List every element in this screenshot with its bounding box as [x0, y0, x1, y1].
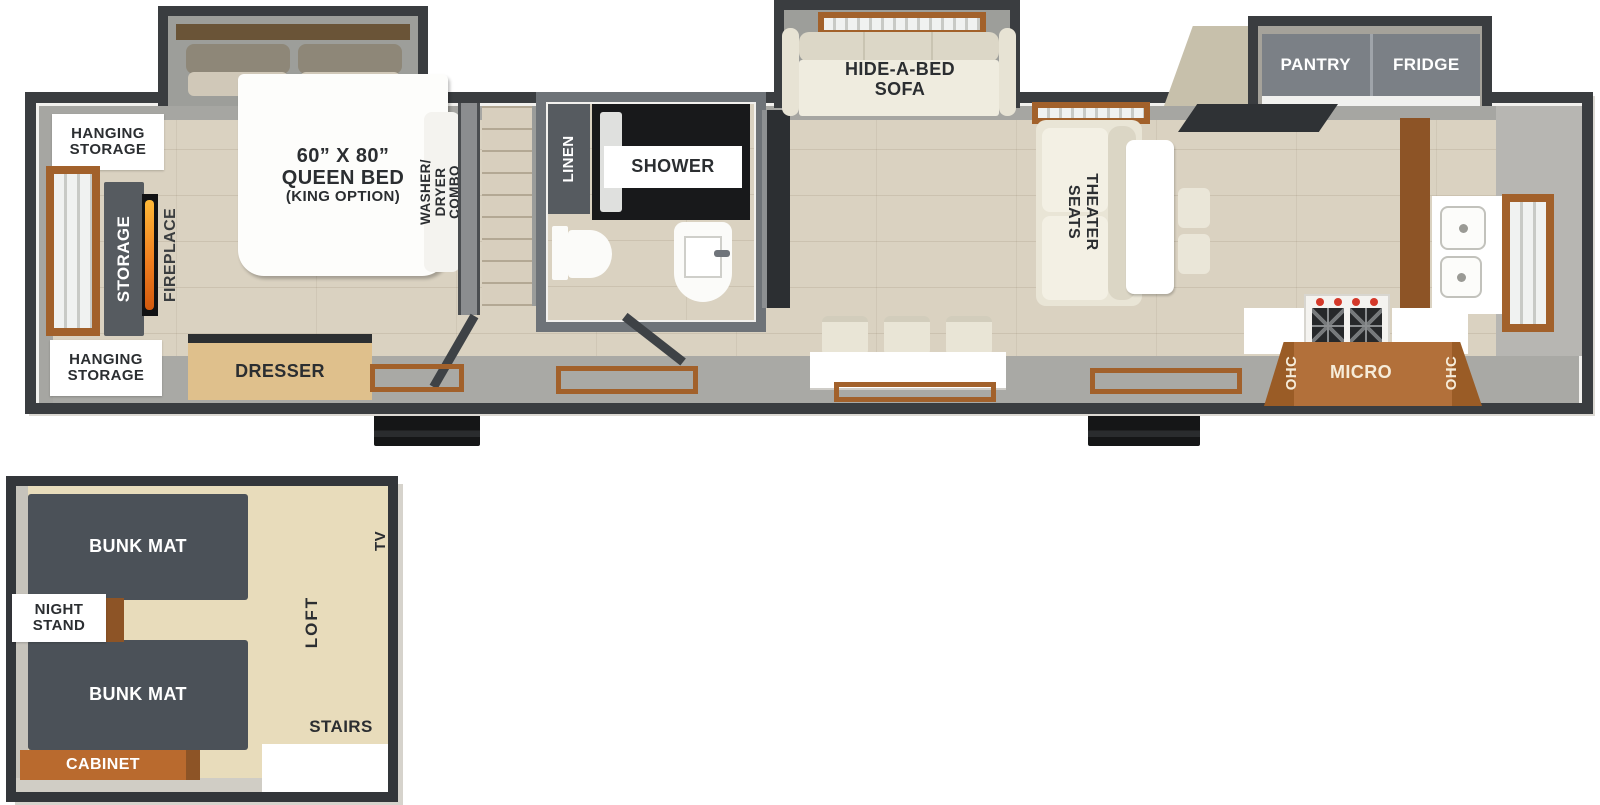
hanging-storage-top-label: HANGING STORAGE: [52, 114, 164, 170]
entry-step-left: [374, 412, 480, 446]
fireplace-label: FIREPLACE: [156, 185, 186, 325]
label-line: WASHER/: [419, 159, 434, 225]
theater-seats-label: THEATER SEATS: [1060, 137, 1104, 287]
label-line: NIGHT: [35, 602, 84, 619]
tv-entertainment-wall: [762, 110, 790, 308]
pantry-fridge-cabinet: PANTRY FRIDGE: [1262, 34, 1480, 96]
storage-label: STORAGE: [104, 184, 144, 334]
stairs-to-loft: [482, 106, 536, 306]
stove-knob-icon: [1370, 298, 1378, 306]
label-line: OHC: [1284, 356, 1301, 391]
kitchen-tall-cabinet: [1400, 118, 1430, 316]
label-line: MICRO: [1330, 363, 1392, 383]
label-line: OHC: [1444, 356, 1461, 391]
label-line: STAND: [33, 618, 86, 635]
label-line: SEATS: [1064, 185, 1082, 239]
shower-label: SHOWER: [604, 146, 742, 188]
loft-tv-label: TV: [369, 511, 393, 571]
sofa-label: HIDE-A-BED SOFA: [812, 52, 988, 108]
bed-size-label: 60” X 80”: [297, 145, 390, 167]
bathroom-sink-basin: [684, 236, 722, 278]
label-line: BUNK MAT: [89, 685, 187, 705]
label-line: FIREPLACE: [162, 208, 180, 302]
bed-type-label: QUEEN BED: [282, 167, 405, 189]
label-line: DRYER: [434, 168, 449, 217]
label-line: STORAGE: [70, 142, 147, 159]
kitchen-sink: [1440, 206, 1486, 250]
sink-drain-icon: [1457, 273, 1466, 282]
dinette-chair: [1178, 188, 1210, 228]
stairs-label: STAIRS: [286, 714, 396, 740]
fireplace-flame-icon: [145, 200, 154, 310]
label-line: BUNK MAT: [89, 537, 187, 557]
label-line: LOFT: [303, 596, 322, 648]
sofa-arm: [999, 28, 1016, 116]
pillow: [298, 44, 402, 74]
label-line: SHOWER: [631, 157, 714, 177]
hanging-storage-bottom-label: HANGING STORAGE: [50, 340, 162, 396]
label-line: HIDE-A-BED: [845, 60, 955, 80]
kitchen-entry-mat: [1090, 368, 1242, 394]
label-line: STORAGE: [115, 216, 134, 303]
label-line: PANTRY: [1281, 56, 1351, 75]
floorplan-canvas: HANGING STORAGE STORAGE FIREPLACE HANGIN…: [0, 0, 1600, 805]
night-stand-label: NIGHT STAND: [12, 594, 106, 642]
label-line: STORAGE: [68, 368, 145, 385]
kitchen-window: [1502, 194, 1554, 332]
sofa-arm: [782, 28, 799, 116]
label-line: FRIDGE: [1393, 56, 1460, 75]
label-line: TV: [373, 531, 390, 551]
stove-knob-icon: [1316, 298, 1324, 306]
label-line: SOFA: [875, 80, 926, 100]
toilet-bowl: [568, 230, 612, 278]
dinette-chair: [1178, 234, 1210, 274]
stove-knob-icon: [1334, 298, 1342, 306]
loft-cabinet: CABINET: [20, 750, 200, 780]
label-line: THEATER: [1082, 173, 1100, 250]
entry-step-right: [1088, 412, 1200, 446]
toilet-tank: [552, 226, 568, 280]
pantry-label: PANTRY: [1262, 34, 1370, 96]
bunk-mat-top: BUNK MAT: [28, 494, 248, 600]
night-stand: [106, 598, 124, 642]
stove-burner-grate: [1312, 308, 1344, 344]
dinette-table: [1126, 140, 1174, 294]
label-line: LINEN: [561, 136, 578, 183]
dresser: DRESSER: [188, 334, 372, 400]
label-line: DRESSER: [235, 362, 325, 382]
stove-knobs: [1306, 298, 1388, 306]
linen-label: LINEN: [554, 104, 584, 214]
kitchen-slide-wedge: [1164, 26, 1260, 106]
bedroom-floor-mat: [370, 364, 464, 392]
fridge-label: FRIDGE: [1373, 34, 1481, 96]
bed-headboard: [176, 24, 410, 40]
faucet-icon: [714, 250, 730, 257]
stove-knob-icon: [1352, 298, 1360, 306]
bunk-mat-bottom: BUNK MAT: [28, 640, 248, 750]
bedroom-window: [46, 166, 100, 336]
sink-drain-icon: [1459, 224, 1468, 233]
hall-floor-mat: [556, 366, 698, 394]
bar-stool: [884, 316, 930, 356]
stove-burner-grate: [1350, 308, 1382, 344]
living-entry-mat: [834, 382, 996, 402]
bed-option-label: (KING OPTION): [286, 189, 400, 206]
loft-stair-opening: [262, 744, 388, 792]
label-line: HANGING: [71, 126, 145, 143]
micro-label: MICRO: [1316, 358, 1406, 388]
ohc-left-label: OHC: [1281, 343, 1303, 403]
label-line: STAIRS: [309, 718, 372, 737]
pillow: [186, 44, 290, 74]
label-line: HANGING: [69, 352, 143, 369]
ohc-right-label: OHC: [1441, 343, 1463, 403]
kitchen-sink: [1440, 256, 1482, 298]
bar-stool: [822, 316, 868, 356]
bedroom-wall: [458, 103, 480, 315]
label-line: CABINET: [66, 756, 140, 774]
loft-label: LOFT: [297, 567, 327, 677]
bar-stool: [946, 316, 992, 356]
kitchen-dark-counter: [1178, 104, 1338, 132]
